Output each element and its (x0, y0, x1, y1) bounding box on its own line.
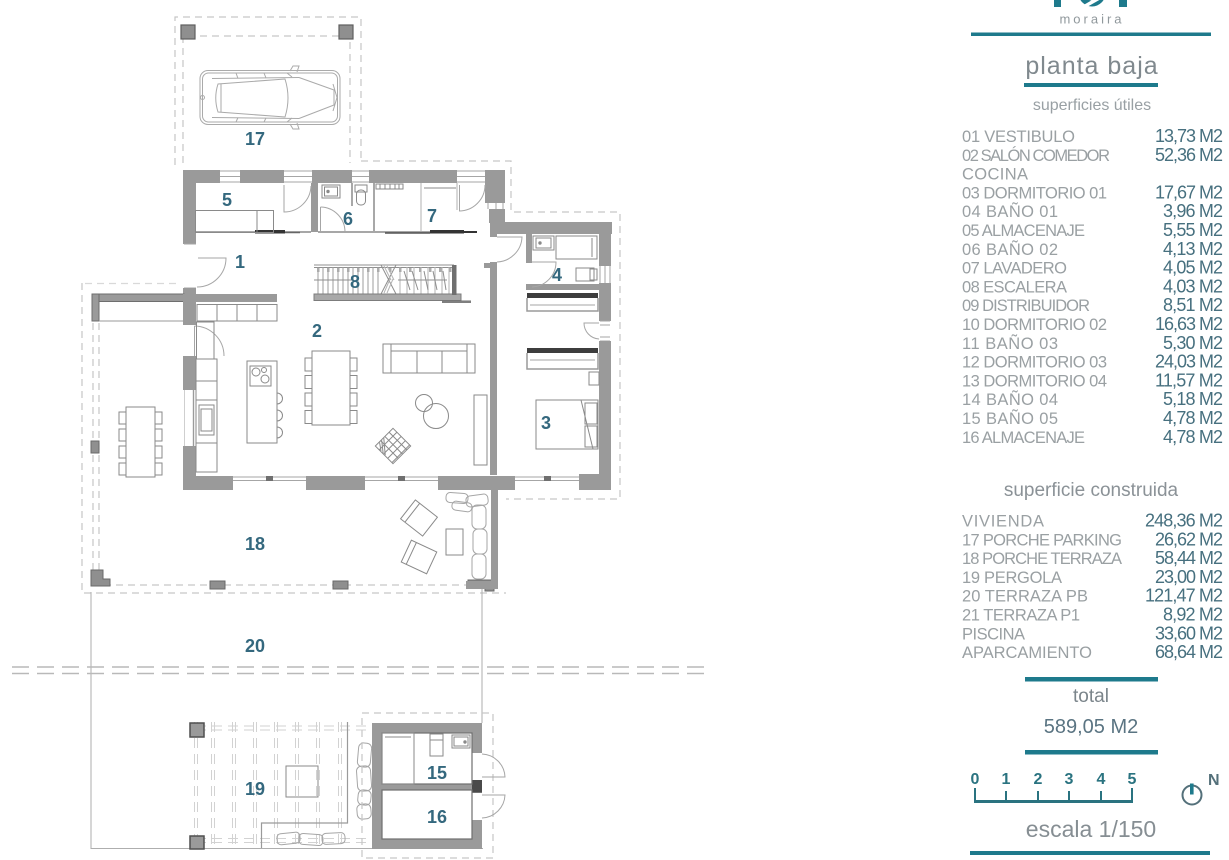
svg-text:23,00 M2: 23,00 M2 (1155, 567, 1223, 587)
svg-text:VIVIENDA: VIVIENDA (962, 513, 1044, 531)
svg-text:16,63 M2: 16,63 M2 (1155, 314, 1223, 334)
svg-text:2: 2 (312, 321, 322, 341)
svg-text:17,67 M2: 17,67 M2 (1155, 182, 1223, 202)
svg-text:121,47 M2: 121,47 M2 (1145, 586, 1223, 606)
svg-text:68,64 M2: 68,64 M2 (1155, 642, 1223, 662)
svg-text:05 ALMACENAJE: 05 ALMACENAJE (962, 222, 1085, 240)
svg-text:superficie construida: superficie construida (1004, 480, 1179, 501)
svg-text:4,78 M2: 4,78 M2 (1163, 408, 1223, 428)
svg-text:16 ALMACENAJE: 16 ALMACENAJE (962, 429, 1085, 447)
svg-text:248,36 M2: 248,36 M2 (1145, 511, 1223, 531)
svg-text:8: 8 (350, 272, 360, 292)
svg-text:12 DORMITORIO 03: 12 DORMITORIO 03 (962, 354, 1107, 372)
svg-text:13 DORMITORIO 04: 13 DORMITORIO 04 (962, 372, 1107, 390)
svg-text:11 BAÑO 03: 11 BAÑO 03 (962, 333, 1058, 353)
svg-text:58,44 M2: 58,44 M2 (1155, 548, 1223, 568)
svg-text:4,05 M2: 4,05 M2 (1163, 258, 1223, 278)
svg-text:4: 4 (1097, 771, 1106, 788)
svg-text:18: 18 (245, 534, 265, 554)
svg-text:16: 16 (427, 807, 447, 827)
svg-text:total: total (1073, 686, 1109, 707)
svg-text:20: 20 (245, 636, 265, 656)
svg-text:10 DORMITORIO 02: 10 DORMITORIO 02 (962, 316, 1107, 334)
svg-text:21 TERRAZA P1: 21 TERRAZA P1 (962, 607, 1080, 625)
svg-text:15 BAÑO 05: 15 BAÑO 05 (962, 408, 1058, 428)
svg-text:3: 3 (541, 413, 551, 433)
svg-text:7: 7 (427, 206, 437, 226)
svg-text:20 TERRAZA PB: 20 TERRAZA PB (962, 588, 1088, 606)
svg-text:03 DORMITORIO 01: 03 DORMITORIO 01 (962, 184, 1107, 202)
svg-text:4,13 M2: 4,13 M2 (1163, 239, 1223, 259)
svg-text:APARCAMIENTO: APARCAMIENTO (962, 644, 1092, 662)
svg-text:06 BAÑO 02: 06 BAÑO 02 (962, 239, 1058, 259)
svg-text:04 BAÑO 01: 04 BAÑO 01 (962, 201, 1058, 221)
svg-text:52,36 M2: 52,36 M2 (1155, 145, 1223, 165)
svg-text:6: 6 (343, 209, 353, 229)
svg-text:5,55 M2: 5,55 M2 (1163, 220, 1223, 240)
svg-text:N: N (1208, 772, 1220, 789)
svg-text:1: 1 (235, 252, 245, 272)
svg-text:02 SALÓN COMEDOR: 02 SALÓN COMEDOR (962, 146, 1110, 165)
svg-text:5,30 M2: 5,30 M2 (1163, 333, 1223, 353)
svg-text:3: 3 (1065, 771, 1074, 788)
svg-text:5,18 M2: 5,18 M2 (1163, 389, 1223, 409)
svg-text:07 LAVADERO: 07 LAVADERO (962, 260, 1067, 278)
svg-text:09 DISTRIBUIDOR: 09 DISTRIBUIDOR (962, 297, 1090, 315)
svg-text:24,03 M2: 24,03 M2 (1155, 352, 1223, 372)
svg-text:1: 1 (1002, 771, 1011, 788)
svg-text:5: 5 (1128, 771, 1137, 788)
svg-text:5: 5 (222, 190, 232, 210)
svg-text:08 ESCALERA: 08 ESCALERA (962, 278, 1067, 296)
svg-text:19: 19 (245, 779, 265, 799)
svg-text:4,03 M2: 4,03 M2 (1163, 276, 1223, 296)
svg-text:4,78 M2: 4,78 M2 (1163, 427, 1223, 447)
svg-text:26,62 M2: 26,62 M2 (1155, 529, 1223, 549)
svg-text:8,51 M2: 8,51 M2 (1163, 295, 1223, 315)
svg-text:moraira: moraira (1059, 12, 1124, 27)
svg-text:2: 2 (1034, 771, 1043, 788)
svg-text:589,05 M2: 589,05 M2 (1044, 716, 1139, 738)
svg-text:planta baja: planta baja (1025, 52, 1158, 80)
svg-text:15: 15 (427, 763, 447, 783)
svg-text:8,92 M2: 8,92 M2 (1163, 605, 1223, 625)
svg-text:19 PERGOLA: 19 PERGOLA (962, 569, 1062, 587)
svg-text:01 VESTIBULO: 01 VESTIBULO (962, 128, 1075, 146)
svg-text:4: 4 (552, 265, 562, 285)
svg-text:escala 1/150: escala 1/150 (1026, 816, 1156, 842)
svg-text:PISCINA: PISCINA (962, 625, 1025, 643)
svg-text:13,73 M2: 13,73 M2 (1155, 126, 1223, 146)
svg-text:3,96 M2: 3,96 M2 (1163, 201, 1223, 221)
svg-text:11,57 M2: 11,57 M2 (1155, 370, 1223, 390)
svg-text:superficies útiles: superficies útiles (1033, 97, 1151, 114)
svg-text:14 BAÑO 04: 14 BAÑO 04 (962, 389, 1058, 409)
svg-text:0: 0 (971, 771, 980, 788)
svg-text:33,60 M2: 33,60 M2 (1155, 623, 1223, 643)
svg-text:COCINA: COCINA (962, 166, 1028, 184)
svg-text:17 PORCHE PARKING: 17 PORCHE PARKING (962, 531, 1122, 549)
svg-text:18 PORCHE TERRAZA: 18 PORCHE TERRAZA (962, 550, 1122, 568)
svg-text:17: 17 (245, 129, 265, 149)
